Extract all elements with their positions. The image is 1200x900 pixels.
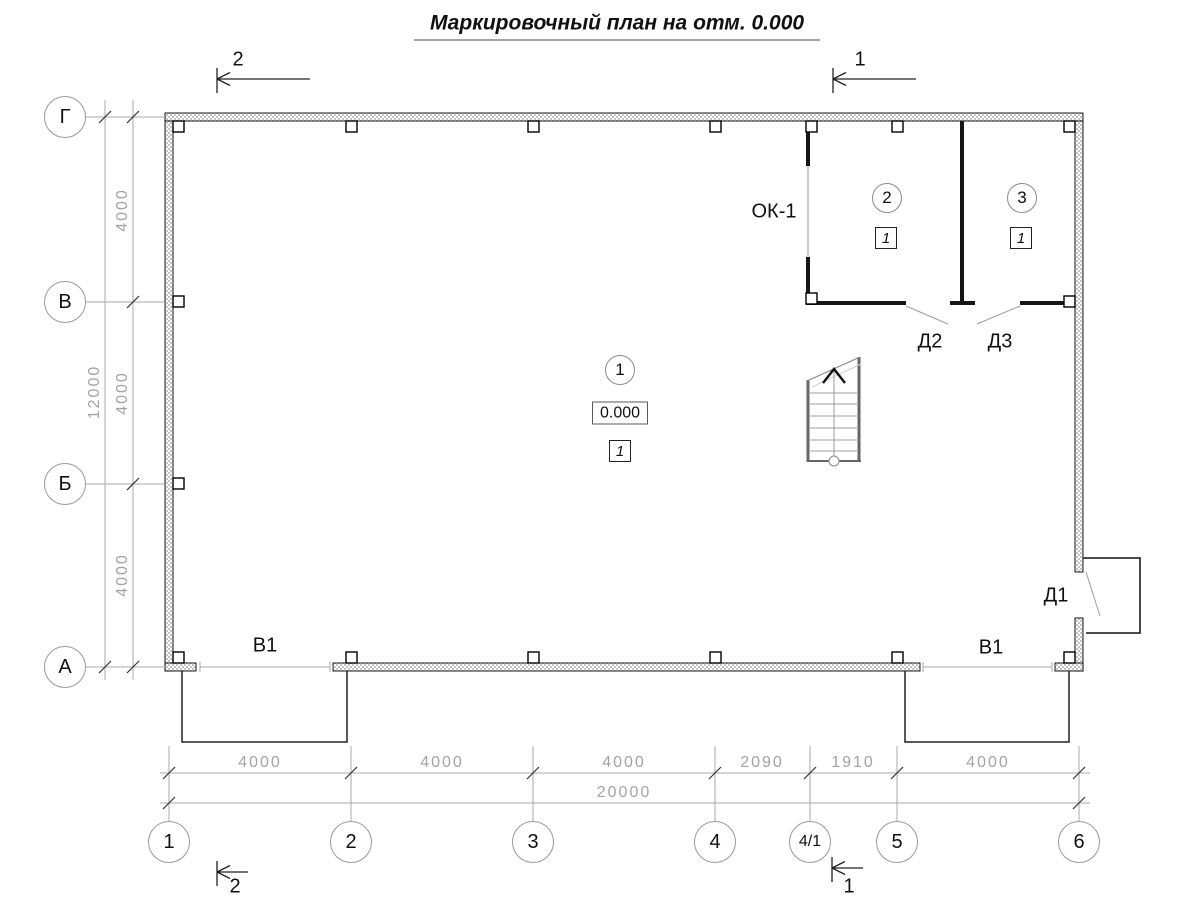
dim-left-1: 4000	[114, 188, 132, 232]
axis-bubble-6: 6	[1058, 821, 1100, 863]
room-3-number: 3	[1007, 183, 1037, 213]
axis-bubble-4-1: 4/1	[789, 821, 831, 863]
dim-bottom-5: 1910	[831, 754, 875, 772]
axis-bubble-5: 5	[876, 821, 918, 863]
axis-bubble-b: Б	[44, 463, 86, 505]
room-1-floor-type: 1	[609, 440, 631, 462]
room-2-number: 2	[872, 183, 902, 213]
room-3-floor-type: 1	[1010, 227, 1032, 249]
gate-mark-v1-left: В1	[253, 635, 277, 658]
outer-walls	[165, 113, 1083, 671]
dim-bottom-3: 4000	[602, 754, 646, 772]
gate-platforms	[182, 671, 1069, 742]
dim-bottom-2: 4000	[420, 754, 464, 772]
axis-bubble-2: 2	[330, 821, 372, 863]
axis-bubble-v: В	[44, 281, 86, 323]
axis-bubble-g: Г	[44, 96, 86, 138]
room-2-floor-type: 1	[875, 227, 897, 249]
dimension-ticks	[99, 111, 1085, 809]
axis-bubble-3: 3	[512, 821, 554, 863]
door-mark-d2: Д2	[918, 331, 943, 354]
column-markers	[173, 121, 1075, 663]
section-mark-2-bottom: 2	[229, 876, 240, 899]
dim-bottom-total: 20000	[597, 784, 652, 802]
entrance-porch	[1083, 558, 1140, 633]
dim-bottom-4: 2090	[740, 754, 784, 772]
floor-plan-canvas: Маркировочный план на отм. 0.000 2 1 2 1…	[0, 0, 1200, 900]
window-mark-ok1: ОК-1	[752, 201, 797, 224]
room-1-number: 1	[605, 355, 635, 385]
axis-bubble-4: 4	[694, 821, 736, 863]
staircase	[807, 357, 861, 466]
dim-bottom-6: 4000	[966, 754, 1010, 772]
section-marks	[217, 68, 916, 886]
axis-bubble-1: 1	[148, 821, 190, 863]
dimension-lines	[85, 100, 1090, 821]
room-1-elevation: 0.000	[592, 402, 648, 425]
section-mark-1-top: 1	[854, 49, 865, 72]
dim-bottom-1: 4000	[238, 754, 282, 772]
section-mark-2-top: 2	[232, 49, 243, 72]
door-mark-d1: Д1	[1044, 585, 1069, 608]
dim-left-total: 12000	[86, 365, 104, 420]
gate-mark-v1-right: В1	[979, 637, 1003, 660]
section-mark-1-bottom: 1	[843, 876, 854, 899]
door-mark-d3: Д3	[988, 331, 1013, 354]
drawing-title: Маркировочный план на отм. 0.000	[414, 12, 820, 41]
axis-bubble-a: А	[44, 646, 86, 688]
dim-left-3: 4000	[114, 553, 132, 597]
plan-linework	[0, 0, 1200, 900]
dim-left-2: 4000	[114, 371, 132, 415]
partition-walls	[806, 121, 1075, 305]
